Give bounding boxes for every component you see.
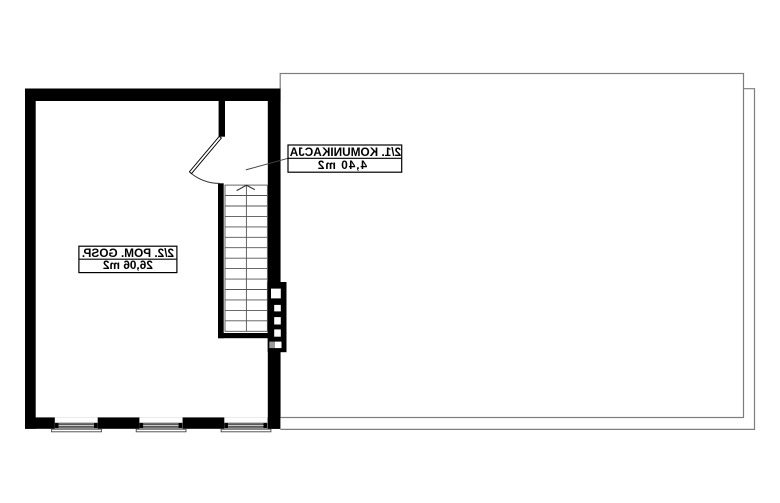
svg-text:2/1. KOMUNIKACJA: 2/1. KOMUNIKACJA (289, 145, 401, 159)
svg-text:26,06 m2: 26,06 m2 (103, 258, 153, 272)
svg-text:4,40 m2: 4,40 m2 (317, 158, 367, 172)
